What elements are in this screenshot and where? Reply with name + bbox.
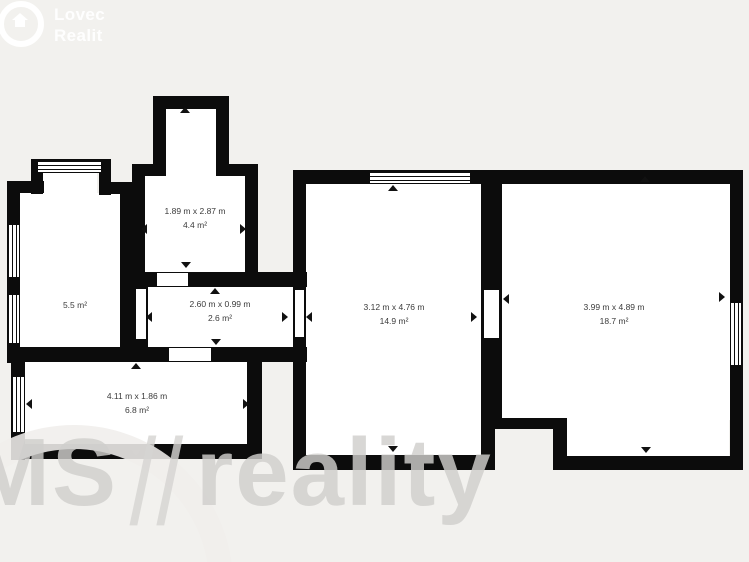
room-label-left-room: 5.5 m² [63,298,87,312]
dimension-arrow-down [641,447,651,453]
agency-name: Lovec Realit [54,4,105,46]
dimension-arrow-right [240,224,246,234]
door-opening [157,273,188,286]
wall [245,164,258,286]
room-area: 18.7 m² [584,314,645,328]
dimension-arrow-left [146,312,152,322]
room-label-hallway: 2.60 m x 0.99 m 2.6 m² [190,297,251,325]
room-dimensions: 4.11 m x 1.86 m [107,389,167,403]
dimension-arrow-up [210,288,220,294]
window [9,225,19,277]
room-dimensions: 3.12 m x 4.76 m [364,300,425,314]
agency-name-line2: Realit [54,25,105,46]
dimension-arrow-right [471,312,477,322]
room-area: 5.5 m² [63,298,87,312]
wall [7,347,307,362]
dimension-arrow-down [388,446,398,452]
door-opening [484,290,499,338]
room-label-top-room: 1.89 m x 2.87 m 4.4 m² [165,204,226,232]
wall [487,170,743,184]
room-label-right-room: 3.99 m x 4.89 m 18.7 m² [584,300,645,328]
room-label-middle-room: 3.12 m x 4.76 m 14.9 m² [364,300,425,328]
window [38,162,101,172]
room-area: 2.6 m² [190,311,251,325]
wall [293,455,491,470]
dimension-arrow-up [640,176,650,182]
room-dimensions: 1.89 m x 2.87 m [165,204,226,218]
window [731,303,741,365]
floorplan-canvas: 1.89 m x 2.87 m 4.4 m² 5.5 m² 2.60 m x 0… [0,0,749,562]
house-icon [12,13,28,27]
room-area: 14.9 m² [364,314,425,328]
dimension-arrow-down [181,262,191,268]
dimension-arrow-down [131,450,141,456]
room-area: 4.4 m² [165,218,226,232]
dimension-arrow-up [131,363,141,369]
wall [247,361,262,451]
window [370,173,470,183]
door-opening [169,348,211,361]
room-dimensions: 3.99 m x 4.89 m [584,300,645,314]
door-opening [295,290,304,337]
dimension-arrow-up [388,185,398,191]
dimension-arrow-left [141,224,147,234]
door-opening [136,289,146,339]
room-area: 6.8 m² [107,403,167,417]
room-dimensions: 2.60 m x 0.99 m [190,297,251,311]
dimension-arrow-right [282,312,288,322]
wall [553,456,743,470]
dimension-arrow-left [306,312,312,322]
dimension-arrow-down [211,339,221,345]
dimension-arrow-right [719,292,725,302]
dimension-arrow-left [26,399,32,409]
wall [127,272,307,287]
agency-name-line1: Lovec [54,4,105,25]
dimension-arrow-right [243,399,249,409]
top-room-floor-narrow [166,109,216,179]
left-room-floor [20,193,122,351]
window [9,295,19,343]
dimension-arrow-left [503,294,509,304]
room-label-bottom-room: 4.11 m x 1.86 m 6.8 m² [107,389,167,417]
window [13,377,24,432]
dimension-arrow-up [180,107,190,113]
